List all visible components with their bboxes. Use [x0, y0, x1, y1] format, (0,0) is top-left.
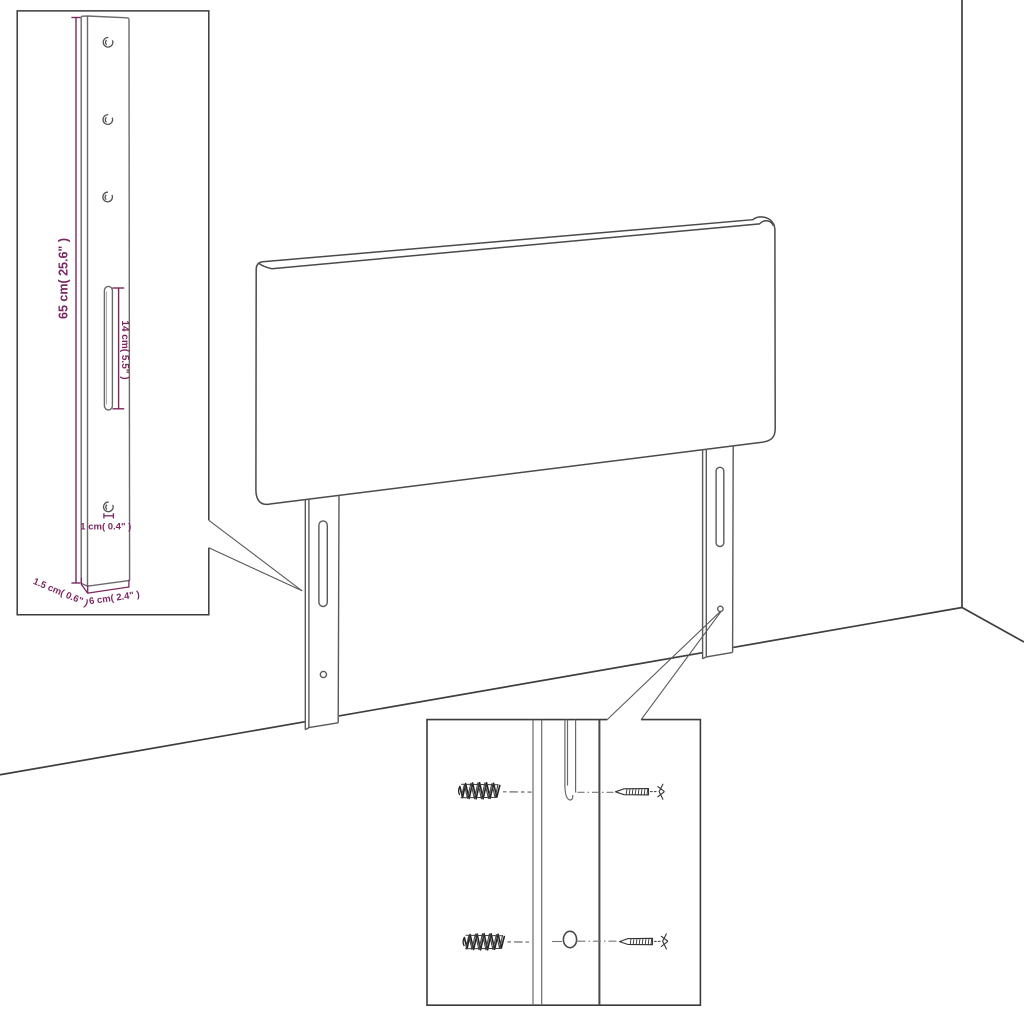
svg-text:1 cm( 0.4" ): 1 cm( 0.4" ) [80, 521, 131, 532]
svg-text:14 cm( 5.5" ): 14 cm( 5.5" ) [119, 320, 130, 379]
svg-text:65 cm( 25.6" ): 65 cm( 25.6" ) [56, 238, 70, 319]
